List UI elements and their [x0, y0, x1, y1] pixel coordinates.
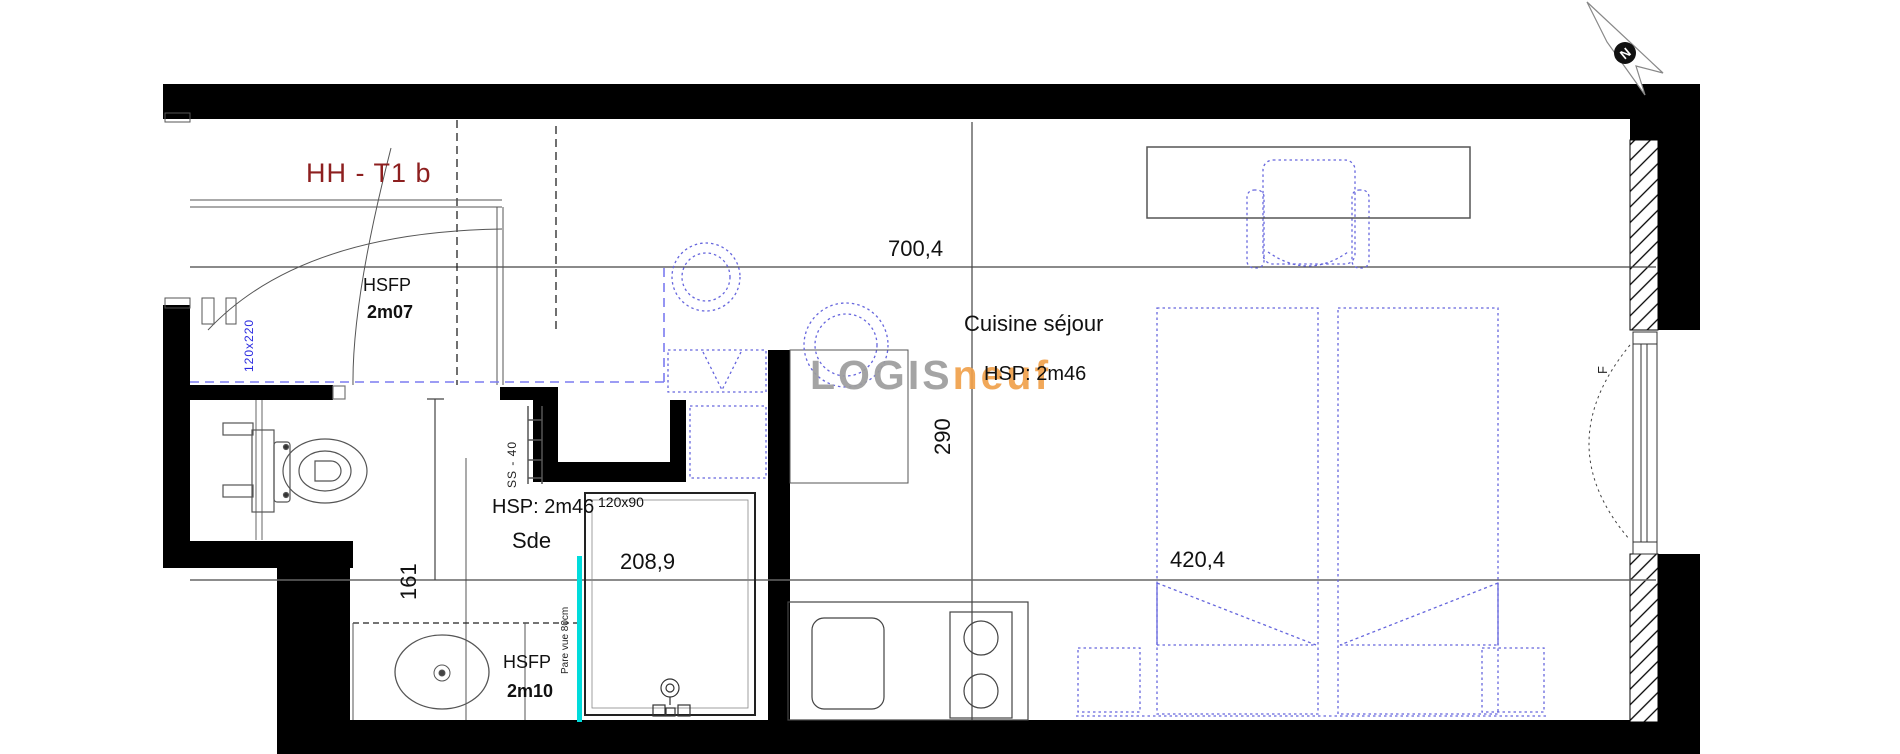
bed-mattress-right	[1338, 308, 1498, 714]
toilet-bowl-outer	[283, 439, 367, 503]
entry-hsfp-label: HSFP	[363, 276, 411, 294]
north-arrow: N	[1587, 2, 1663, 95]
wall-top	[163, 84, 1700, 119]
dim-kitchen-depth: 290	[932, 418, 954, 455]
kitchen-counter-lower	[788, 602, 1028, 720]
entry-hsfp-value: 2m07	[367, 303, 413, 321]
wall-sde-c	[546, 462, 686, 482]
wall-wc	[190, 385, 333, 400]
wall-bottom	[277, 720, 1700, 754]
towel-rail-label: SS - 40	[506, 441, 518, 488]
toilet-bolt-1	[284, 445, 289, 450]
window-swing-arc	[1589, 345, 1630, 540]
door-hinge-bracket-1	[202, 298, 214, 324]
room-living-name: Cuisine séjour	[964, 313, 1103, 335]
sink-drain-dot	[439, 670, 445, 676]
entrance-door	[165, 113, 503, 385]
dashed-column-inner	[682, 253, 730, 301]
dim-total-width: 700,4	[888, 238, 943, 260]
floor-plan: N HH - T1 b LOGISneuf HSFP 2m07 120x220 …	[0, 0, 1900, 754]
privacy-screen-label: Pare vue 80cm	[561, 607, 571, 674]
wc-door-jamb	[333, 386, 345, 399]
watermark-logis: LOGIS	[810, 352, 953, 398]
vanity-counter	[353, 623, 525, 720]
sde-hsp: HSP: 2m46	[492, 497, 594, 517]
toilet-bowl-inner	[299, 451, 351, 491]
desk-chair-arm-left	[1247, 190, 1264, 268]
toilet	[223, 386, 367, 540]
entry-door-size: 120x220	[243, 319, 255, 372]
wall-sde-d	[670, 400, 686, 482]
cooktop-burner-1	[964, 621, 998, 655]
desk	[1147, 147, 1470, 218]
bed-fold-right	[1340, 583, 1498, 645]
hatched-wall-upper	[1630, 140, 1658, 330]
privacy-screen	[577, 556, 582, 722]
nightstand-right	[1482, 648, 1544, 712]
cooktop-burner-2	[964, 674, 998, 708]
cooktop	[950, 612, 1012, 718]
niche-dashed-bottom	[690, 406, 766, 478]
window-f-label: F	[1596, 366, 1609, 374]
nightstand-left	[1078, 648, 1140, 712]
living-hsp: HSP: 2m46	[984, 364, 1086, 384]
wall-sde-a	[500, 387, 558, 400]
wall-left	[163, 305, 190, 545]
niche-dashed-top	[668, 350, 766, 392]
shower-tray	[585, 493, 755, 715]
toilet-cistern	[252, 430, 274, 512]
dimension-lines	[190, 122, 1656, 720]
wall-right-top-corner	[1630, 112, 1700, 140]
desk-chair-seat	[1263, 160, 1355, 264]
door-swing-arc	[208, 229, 502, 330]
wall-kitchen	[768, 350, 790, 722]
shower-size: 120x90	[598, 495, 644, 509]
wc-wall-fixture-1	[223, 423, 253, 435]
toilet-flush	[315, 461, 341, 481]
dashed-furniture	[190, 160, 1546, 716]
kitchen-sink	[812, 618, 884, 709]
sde-hsfp-label: HSFP	[503, 653, 551, 671]
dim-sde-depth: 161	[398, 563, 420, 600]
plan-title: HH - T1 b	[306, 160, 432, 187]
room-sde-name: Sde	[512, 530, 551, 552]
bed-fold-left	[1157, 583, 1316, 645]
wc-wall-fixture-2	[223, 485, 253, 497]
dim-bed-width: 420,4	[1170, 549, 1225, 571]
niche-arrow	[703, 352, 741, 390]
wall-step-vertical	[277, 541, 350, 726]
toilet-bolt-2	[284, 493, 289, 498]
sde-hsfp-value: 2m10	[507, 682, 553, 700]
desk-chair-back	[1268, 252, 1348, 266]
dim-sde-width: 208,9	[620, 551, 675, 573]
bed-mattress-left	[1157, 308, 1318, 714]
desk-chair-arm-right	[1352, 190, 1369, 268]
shower-head	[653, 679, 690, 716]
